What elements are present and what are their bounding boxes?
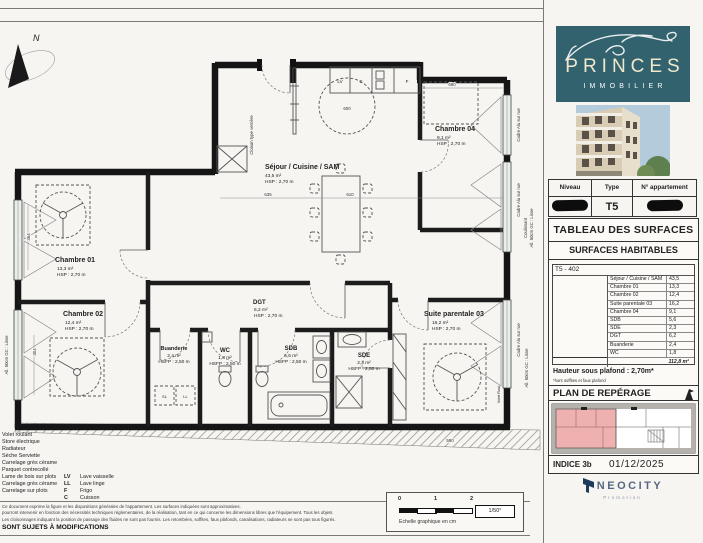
surface-row: Chambre 0212,4 — [553, 292, 694, 300]
verriere-label: Cloison type verrière — [249, 115, 254, 155]
svg-text:Cadre Alu sur rue: Cadre Alu sur rue — [516, 323, 521, 357]
abbrev-item: LLLave linge — [64, 481, 114, 488]
door-jamb — [257, 59, 262, 71]
scale-tick: 0 — [398, 496, 401, 502]
svg-text:600: 600 — [343, 106, 351, 111]
svg-text:1,8 m²: 1,8 m² — [218, 355, 232, 361]
room-labels: Séjour / Cuisine / SAM 43,5 m² HSP : 2,7… — [55, 126, 484, 372]
svg-text:HSP : 2,70 m: HSP : 2,70 m — [57, 272, 85, 278]
svg-text:635: 635 — [264, 192, 272, 197]
notes-divider-bottom — [0, 535, 530, 536]
svg-text:364: 364 — [26, 233, 31, 241]
indice-date: 01/12/2025 — [609, 456, 664, 474]
surface-row: Chambre 049,1 — [553, 308, 694, 316]
legend-item: Radiateur — [2, 446, 162, 453]
room-label-sde: SDE — [358, 353, 370, 359]
promoter-subtitle: Promotion — [548, 495, 697, 500]
promoter-logo: NEOCITY Promotion — [548, 477, 697, 500]
neocity-flag-icon — [582, 477, 595, 494]
appliance-fridge: F — [406, 79, 409, 84]
surface-row: WC1,8 — [553, 349, 694, 357]
scale-caption: Echelle graphique en cm — [399, 519, 456, 525]
svg-text:HSP : 2,70 m: HSP : 2,70 m — [437, 141, 465, 147]
svg-text:HSFP : 2,50 m: HSFP : 2,50 m — [158, 359, 189, 365]
svg-text:9,1 m²: 9,1 m² — [437, 135, 451, 141]
legend-item: Volet roulant — [2, 432, 162, 439]
svg-text:2,3 m²: 2,3 m² — [357, 360, 371, 366]
room-label-sejour: Séjour / Cuisine / SAM — [265, 164, 339, 171]
dining-table — [310, 164, 372, 264]
promoter-name: NEOCITY — [597, 480, 663, 492]
room-label-chambre01: Chambre 01 — [55, 257, 95, 264]
svg-text:16,2 m²: 16,2 m² — [432, 320, 449, 326]
svg-text:HSP : 2,70 m: HSP : 2,70 m — [254, 313, 282, 319]
surface-row: SDB5,6 — [553, 317, 694, 325]
surfaces-panel: TABLEAU DES SURFACES SURFACES HABITABLES… — [548, 218, 699, 474]
surface-row: Chambre 0113,3 — [553, 284, 694, 292]
legend-item: Sèche Serviette — [2, 453, 162, 460]
room-label-suite: Suite parentale 03 — [424, 311, 484, 318]
info-header-type: Type — [592, 180, 633, 197]
surface-row: Suite parentale 0316,2 — [553, 300, 694, 308]
scanned-plan-page: { "plan": { "compass": "N", "rooms": { "… — [0, 0, 703, 543]
brand-tagline: IMMOBILIER — [556, 83, 690, 90]
svg-text:Cadre Alu sur rue: Cadre Alu sur rue — [516, 183, 521, 217]
location-plan — [551, 403, 696, 454]
info-value-appartement — [633, 197, 697, 217]
surface-row: SDE2,3 — [553, 325, 694, 333]
svg-text:All. 50cm GC : Lisse: All. 50cm GC : Lisse — [524, 348, 529, 388]
reperage-header: PLAN DE REPÉRAGE — [549, 385, 698, 401]
svg-text:43,5 m²: 43,5 m² — [265, 173, 282, 179]
north-arrow-icon: N — [1, 33, 59, 88]
surface-total: 112,8 m² — [667, 358, 695, 368]
room-label-dgt: DGT — [253, 300, 266, 306]
surface-total-row: 112,8 m² — [553, 358, 694, 368]
surfaces-table: T5 - 402 Séjour / Cuisine / SAM43,5 Cham… — [552, 264, 695, 365]
indice-row: INDICE 3b 01/12/2025 — [549, 455, 698, 473]
doors — [105, 65, 448, 368]
svg-text:HSFP : 2,50 m: HSFP : 2,50 m — [275, 359, 306, 365]
svg-text:6,2 m²: 6,2 m² — [254, 307, 268, 313]
surface-row: Séjour / Cuisine / SAM43,5 — [553, 276, 694, 284]
svg-text:HSP : 2,70 m: HSP : 2,70 m — [65, 326, 93, 332]
svg-text:610: 610 — [346, 192, 354, 197]
scale-bar-segment — [453, 508, 473, 514]
interior-walls — [18, 80, 507, 427]
north-label: N — [33, 33, 40, 43]
surfaces-subtitle: SURFACES HABITABLES — [549, 242, 698, 260]
room-label-wc: WC — [220, 348, 231, 354]
surface-row: Buanderie2,4 — [553, 341, 694, 349]
svg-text:5,6 m²: 5,6 m² — [284, 353, 298, 359]
sidebar-divider — [543, 0, 544, 543]
dimensions: 635 610 690 600 590 364 304 — [26, 82, 503, 443]
svg-text:Volet Roul.: Volet Roul. — [497, 385, 501, 403]
redaction-blob — [552, 199, 588, 211]
svg-text:HSP : 2,70 m: HSP : 2,70 m — [432, 326, 460, 332]
unit-info-table: Niveau Type N° appartement T5 — [548, 179, 697, 217]
legend-item: Carrelage grès cérame — [2, 460, 162, 467]
scale-bar-segment — [417, 508, 437, 514]
scale-ratio: 1/50° — [475, 505, 515, 518]
outer-walls — [15, 62, 510, 428]
info-value-type: T5 — [592, 197, 633, 217]
info-header-niveau: Niveau — [549, 180, 592, 197]
window-annotations: Cloison type verrière Cadre Alu sur rue … — [4, 108, 534, 404]
info-value-niveau — [549, 197, 592, 217]
redaction-blob — [646, 199, 682, 211]
appliance-washer: LL — [183, 394, 188, 399]
kitchen-counter: LV C F — [319, 67, 420, 134]
svg-text:All. 50cm GC : Lisse: All. 50cm GC : Lisse — [529, 208, 534, 248]
indice-label: INDICE 3b — [553, 456, 592, 474]
abbrev-item: LVLave vaisselle — [64, 474, 114, 481]
room-label-sdb: SDB — [285, 346, 298, 352]
ceiling-height: Hauteur sous plafond : 2,70m* — [553, 368, 654, 375]
svg-text:HSP : 2,70 m: HSP : 2,70 m — [265, 179, 293, 185]
scale-bar-segment — [399, 508, 417, 513]
scale-tick: 1 — [434, 496, 437, 502]
reperage-title: PLAN DE REPÉRAGE — [553, 386, 651, 401]
modifications-warning: SONT SUJETS À MODIFICATIONS — [2, 524, 108, 531]
appliance-dryer: SL — [162, 394, 168, 399]
abbrev-item: FFrigo — [64, 488, 114, 495]
scale-bar-segment — [435, 508, 453, 513]
brand-logo: PRINCES IMMOBILIER — [556, 26, 690, 102]
highlighted-apartment — [556, 409, 616, 448]
svg-text:690: 690 — [448, 82, 456, 87]
svg-text:All. 50cm GC : Lisse: All. 50cm GC : Lisse — [4, 335, 9, 375]
building-photo — [576, 105, 670, 176]
brand-name: PRINCES — [556, 56, 690, 78]
ceiling-height-note: *hors soffites et faux plafond — [553, 378, 606, 383]
svg-text:304: 304 — [32, 348, 37, 356]
svg-text:13,3 m²: 13,3 m² — [57, 266, 74, 272]
unit-code: T5 - 402 — [553, 265, 694, 276]
surfaces-title: TABLEAU DES SURFACES — [549, 219, 698, 242]
room-label-chambre04: Chambre 04 — [435, 126, 475, 133]
surface-row: DGT6,2 — [553, 333, 694, 341]
abbreviations-legend: LVLave vaisselle LLLave linge FFrigo CCu… — [64, 474, 114, 502]
svg-text:2,4 m²: 2,4 m² — [167, 353, 181, 359]
entry-closet — [217, 146, 247, 172]
scale-tick: 2 — [470, 496, 473, 502]
legend-item: Store électrique — [2, 439, 162, 446]
svg-text:HSFP : 2,50 m: HSFP : 2,50 m — [209, 361, 240, 367]
graphic-scale: 0 1 2 1/50° Echelle graphique en cm — [386, 492, 524, 532]
svg-text:Cadre Alu sur rue: Cadre Alu sur rue — [516, 108, 521, 142]
svg-text:590: 590 — [446, 438, 454, 443]
info-header-appartement: N° appartement — [633, 180, 697, 197]
room-label-buanderie: Buanderie — [161, 346, 188, 352]
svg-text:12,4 m²: 12,4 m² — [65, 320, 82, 326]
mini-compass-icon — [683, 387, 695, 401]
legend-item: Parquet contrecollé — [2, 467, 162, 474]
room-label-chambre02: Chambre 02 — [63, 311, 103, 318]
svg-text:Coulissant: Coulissant — [523, 217, 528, 238]
svg-text:HSFP : 2,50 m: HSFP : 2,50 m — [348, 366, 379, 372]
